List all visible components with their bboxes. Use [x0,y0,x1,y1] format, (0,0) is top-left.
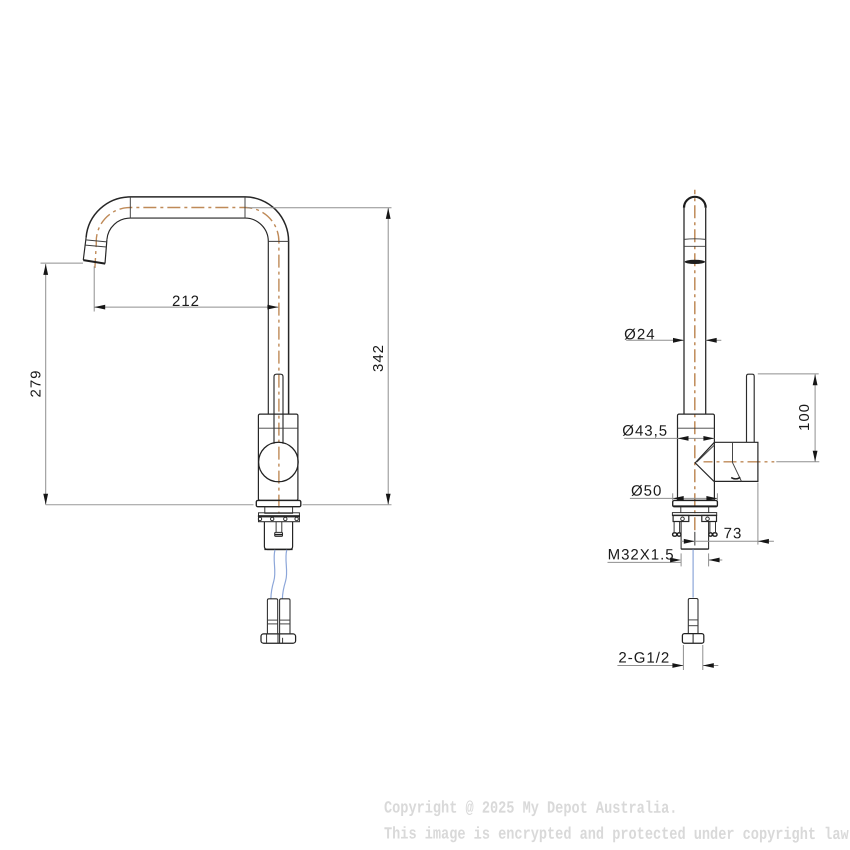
svg-text:2-G1/2: 2-G1/2 [618,650,670,667]
svg-text:Copyright @ 2025 My Depot Aust: Copyright @ 2025 My Depot Australia. [384,798,677,818]
svg-text:Ø24: Ø24 [624,326,655,343]
svg-text:This image is encrypted and pr: This image is encrypted and protected un… [384,824,850,844]
svg-text:M32X1.5: M32X1.5 [608,546,675,563]
svg-text:212: 212 [172,293,200,310]
svg-text:100: 100 [796,403,813,431]
svg-text:279: 279 [28,369,45,397]
svg-text:73: 73 [724,525,743,542]
svg-text:Ø43,5: Ø43,5 [622,423,668,440]
svg-text:Ø50: Ø50 [631,483,662,500]
svg-text:342: 342 [370,344,387,372]
